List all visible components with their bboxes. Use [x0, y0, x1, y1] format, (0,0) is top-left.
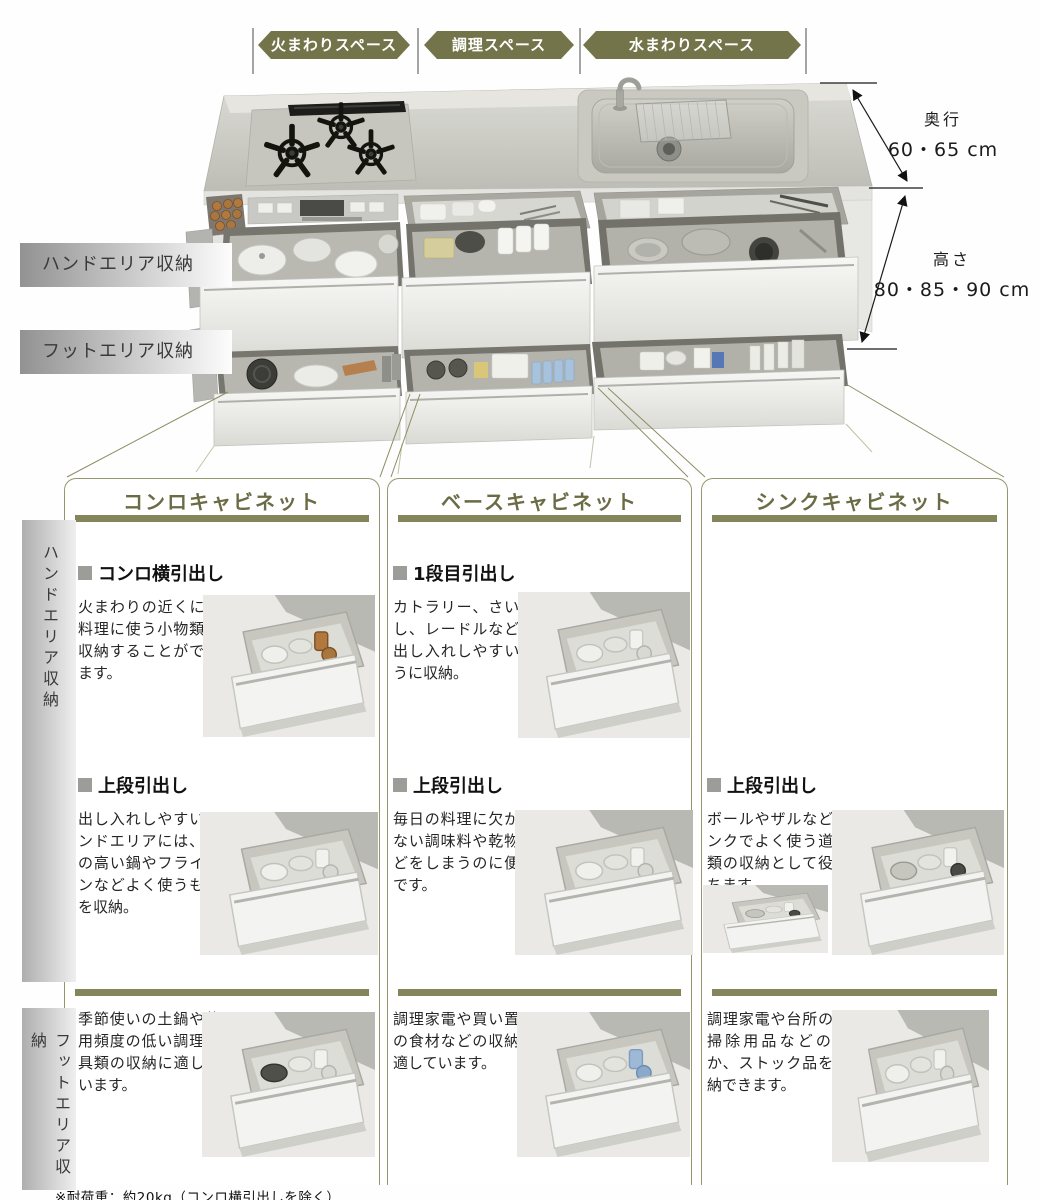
foot-area-band: フットエリア収納 — [20, 330, 232, 374]
square-bullet-icon — [78, 778, 92, 792]
height-label: 高さ — [872, 246, 1032, 270]
cell-body: 調理家電や買い置きの食材などの収納に適しています。 — [393, 1008, 535, 1074]
cell-title: 上段引出し — [727, 772, 817, 798]
cell-title: 上段引出し — [413, 772, 503, 798]
divider-bar — [712, 989, 997, 996]
square-bullet-icon — [393, 566, 407, 580]
kitchen-diagram — [0, 0, 1040, 480]
photo-base-upper-drawer — [515, 810, 693, 955]
hand-area-side-label: ハンドエリア収納 — [37, 544, 61, 982]
cell-body: 火まわりの近くに、料理に使う小物類を収納することができます。 — [78, 596, 220, 684]
cell-body: カトラリー、さいばし、レードルなどを出し入れしやすいように収納。 — [393, 596, 535, 684]
photo-konro-upper-drawer — [200, 812, 378, 955]
photo-sink-upper-drawer — [832, 810, 1004, 955]
photo-base-foot-drawer — [517, 1012, 690, 1157]
height-value: 80・85・90 cm — [872, 275, 1032, 302]
column-header: ベースキャビネット — [388, 486, 691, 515]
square-bullet-icon — [393, 778, 407, 792]
foot-area-side-strip: フットエリア収納 — [22, 1008, 76, 1190]
photo-sink-foot-drawer — [832, 1010, 989, 1162]
depth-value: 60・65 cm — [878, 135, 1008, 162]
column-header: シンクキャビネット — [702, 486, 1007, 515]
divider-bar — [75, 989, 369, 996]
photo-first-tier-drawer — [518, 592, 690, 738]
cell-title: 1段目引出し — [413, 560, 516, 586]
cell-body: 毎日の料理に欠かせない調味料や乾物などをしまうのに便利です。 — [393, 808, 535, 896]
cell-body: 出し入れしやすいハンドエリアには、背の高い鍋やフライパンなどよく使うものを収納。 — [78, 808, 220, 918]
cell-body: 季節使いの土鍋や使用頻度の低い調理道具類の収納に適しています。 — [78, 1008, 220, 1096]
divider-bar — [398, 515, 681, 522]
height-dimension: 高さ 80・85・90 cm — [872, 246, 1032, 302]
photo-sink-knife-rack-detail — [703, 885, 828, 953]
sink — [578, 80, 808, 182]
catalog-page: 火まわりスペース 調理スペース 水まわりスペース — [0, 0, 1040, 1200]
divider-bar — [712, 515, 997, 522]
depth-label: 奥行 — [878, 106, 1008, 130]
divider-bar — [75, 515, 369, 522]
banner-ticks — [253, 28, 806, 74]
hand-area-band: ハンドエリア収納 — [20, 243, 232, 287]
cell-body: 調理家電や台所のお掃除用品などのほか、ストック品を収納できます。 — [707, 1008, 849, 1096]
photo-konro-foot-drawer — [202, 1012, 375, 1157]
photo-konro-side-drawer — [203, 595, 375, 737]
cell-title: コンロ横引出し — [98, 560, 224, 586]
divider-bar — [398, 989, 681, 996]
column-header: コンロキャビネット — [65, 486, 379, 515]
depth-dimension: 奥行 60・65 cm — [878, 106, 1008, 162]
cell-body: ボールやザルなどシンクでよく使う道具類の収納として役立ちます。 — [707, 808, 849, 896]
square-bullet-icon — [78, 566, 92, 580]
load-capacity-footnote: ※耐荷重：約20kg（コンロ横引出しを除く） — [55, 1186, 340, 1200]
square-bullet-icon — [707, 778, 721, 792]
cell-title: 上段引出し — [98, 772, 188, 798]
hand-area-side-strip: ハンドエリア収納 — [22, 520, 76, 982]
foot-area-side-label: フットエリア収納 — [25, 1032, 73, 1190]
